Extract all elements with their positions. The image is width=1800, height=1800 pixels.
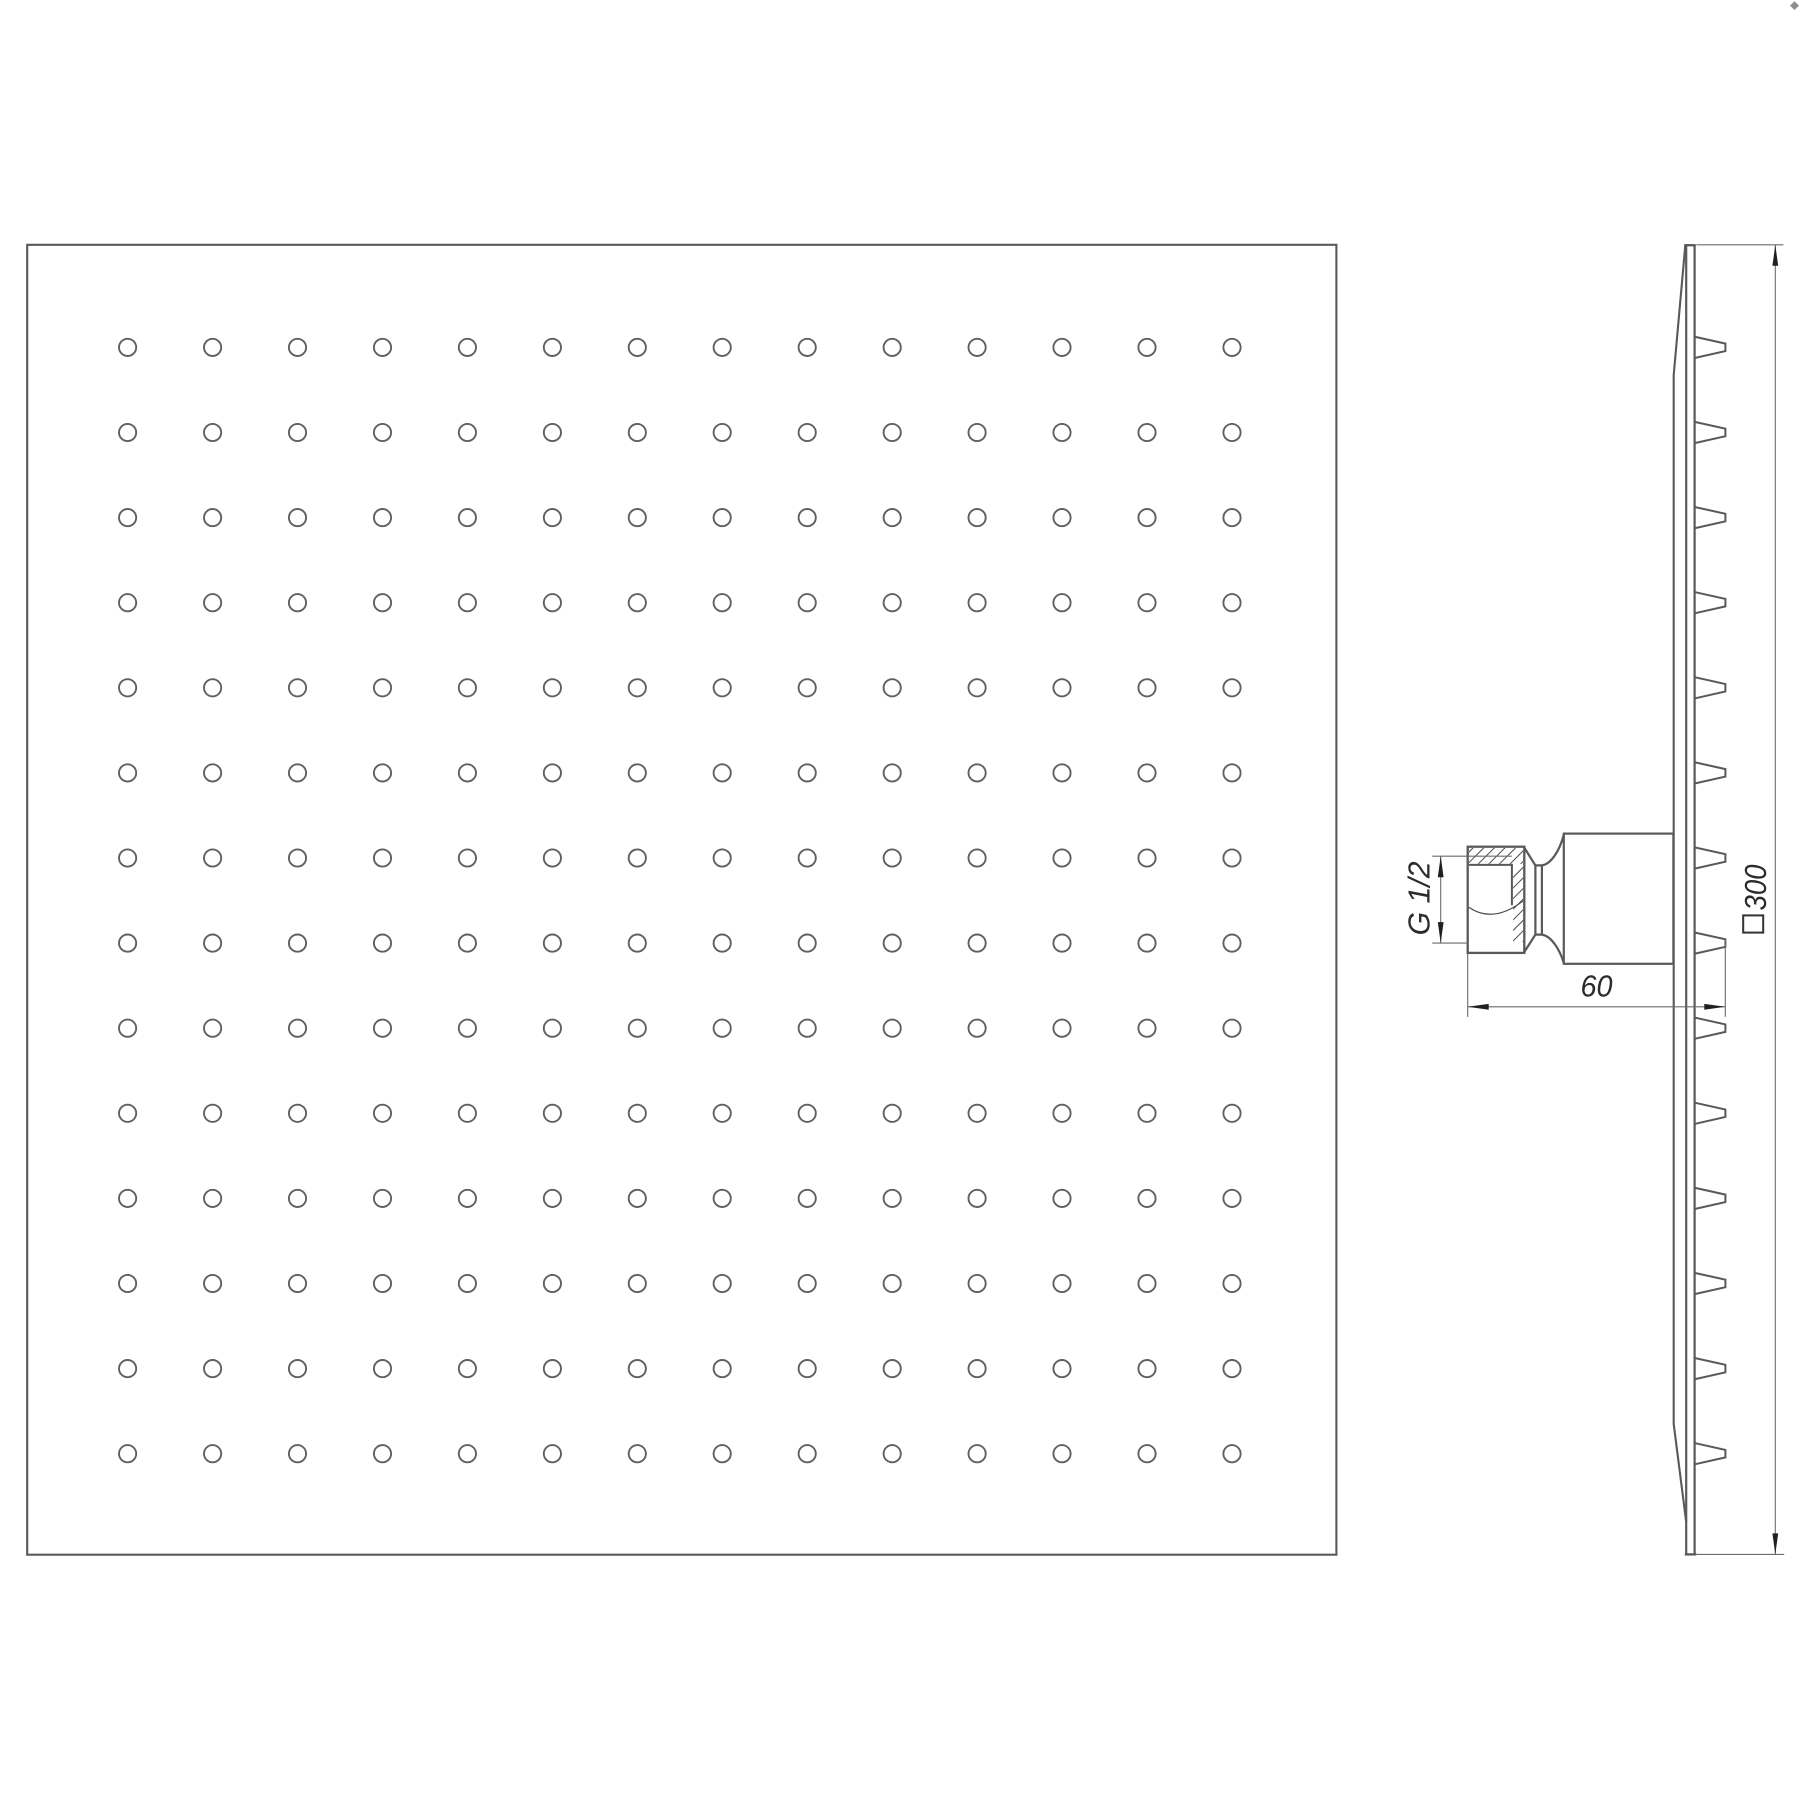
svg-text:60: 60 <box>1581 968 1613 1003</box>
svg-text:G 1/2: G 1/2 <box>1401 861 1436 935</box>
svg-text:300: 300 <box>1738 865 1773 911</box>
